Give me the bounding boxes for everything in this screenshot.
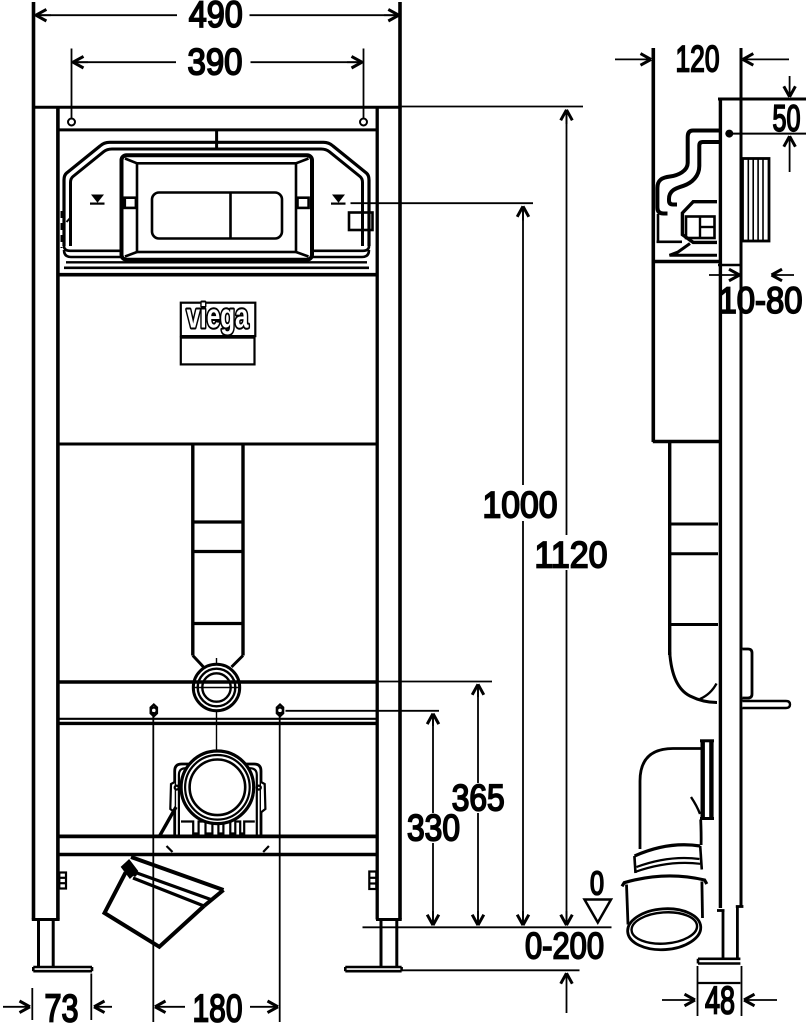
svg-text:120: 120 [676,39,720,80]
svg-text:0: 0 [590,865,604,902]
svg-text:330: 330 [407,808,460,849]
svg-text:1120: 1120 [535,534,608,575]
svg-text:10-80: 10-80 [719,280,803,321]
svg-text:490: 490 [189,0,243,35]
svg-text:0-200: 0-200 [525,926,604,967]
svg-text:viega: viega [187,298,250,336]
svg-text:50: 50 [773,98,801,139]
svg-text:73: 73 [45,988,79,1024]
svg-text:48: 48 [705,980,735,1023]
svg-text:180: 180 [193,988,243,1024]
svg-text:390: 390 [188,42,243,83]
svg-text:1000: 1000 [483,484,558,525]
